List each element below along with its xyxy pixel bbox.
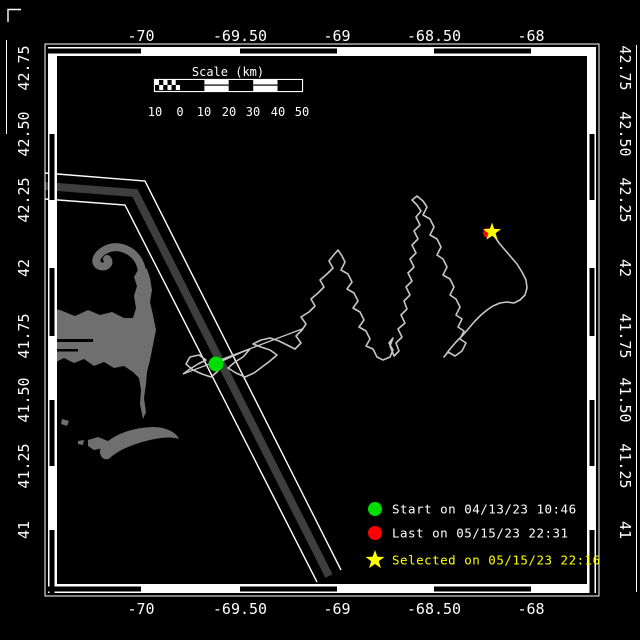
scale-bar-midline — [253, 85, 277, 86]
scale-bar-title: Scale (km) — [192, 65, 264, 79]
lon-tick-label-top: -69.50 — [213, 27, 267, 45]
legend-start-label: Start on 04/13/23 10:46 — [392, 502, 577, 517]
frame-tick-segment — [434, 49, 531, 54]
frame-tick-segment — [240, 587, 337, 592]
lat-tick-label-left: 42.50 — [15, 111, 33, 156]
scale-bar-segment-dark — [180, 80, 204, 91]
lat-tick-label-right: 42.50 — [616, 111, 634, 156]
scale-bar-checker-cell — [168, 80, 172, 85]
scale-bar-checker-cell — [155, 80, 159, 85]
lat-tick-label-right: 42.25 — [616, 177, 634, 222]
lat-tick-label-right: 41.50 — [616, 377, 634, 422]
frame-tick-segment — [50, 134, 55, 200]
frame-tick-segment — [48, 49, 141, 54]
scale-bar-tick-label: 40 — [271, 105, 285, 119]
start-position-marker[interactable] — [209, 357, 224, 372]
lat-tick-label-left: 41.25 — [15, 443, 33, 488]
scale-bar-tick-label: 10 — [148, 105, 162, 119]
scale-bar-tick-label: 0 — [176, 105, 183, 119]
scale-bar-checker-cell — [163, 80, 167, 85]
scale-bar-tick-label: 10 — [197, 105, 211, 119]
legend-start-marker — [368, 502, 382, 516]
lon-tick-label-bottom: -70 — [127, 600, 154, 618]
legend-last-label: Last on 05/15/23 22:31 — [392, 526, 569, 541]
scale-bar-checker-cell — [159, 85, 163, 90]
scale-bar-checker-cell — [155, 85, 159, 90]
lat-tick-label-left: 41.75 — [15, 313, 33, 358]
scale-bar-tick-label: 50 — [295, 105, 309, 119]
lat-tick-label-right: 41 — [616, 521, 634, 539]
lat-tick-label-right: 41.25 — [616, 443, 634, 488]
scale-bar-checker-cell — [176, 85, 180, 90]
frame-tick-segment — [50, 530, 55, 593]
frame-tick-segment — [48, 587, 141, 592]
lon-tick-label-bottom: -68.50 — [407, 600, 461, 618]
legend: Start on 04/13/23 10:46 Last on 05/15/23… — [366, 502, 601, 569]
lat-tick-label-left: 42.75 — [15, 45, 33, 90]
lon-tick-label-bottom: -69 — [323, 600, 350, 618]
legend-selected-label: Selected on 05/15/23 22:16 — [392, 553, 601, 568]
scale-bar-checker-cell — [159, 80, 163, 85]
scale-bar-checker-cell — [163, 85, 167, 90]
lat-tick-label-right: 42 — [616, 259, 634, 277]
scale-bar-checker-cell — [172, 85, 176, 90]
lat-tick-label-left: 41 — [15, 521, 33, 539]
lat-tick-label-left: 41.50 — [15, 377, 33, 422]
lon-tick-label-bottom: -69.50 — [213, 600, 267, 618]
scale-bar-body — [155, 80, 303, 92]
lat-tick-label-left: 42.25 — [15, 177, 33, 222]
tracking-map-window: -70-70-69.50-69.50-69-69-68.50-68.50-68-… — [0, 0, 640, 640]
lon-tick-label-top: -68 — [517, 27, 544, 45]
frame-tick-segment — [240, 49, 337, 54]
scale-bar-checker-cell — [168, 85, 172, 90]
lat-tick-label-right: 41.75 — [616, 313, 634, 358]
scale-bar-checker-cell — [172, 80, 176, 85]
lon-tick-label-bottom: -68 — [517, 600, 544, 618]
lon-tick-label-top: -69 — [323, 27, 350, 45]
frame-tick-segment — [590, 268, 595, 336]
lon-tick-label-top: -70 — [127, 27, 154, 45]
scale-bar-tick-label: 30 — [246, 105, 260, 119]
frame-tick-segment — [50, 400, 55, 466]
lat-tick-label-left: 42 — [15, 259, 33, 277]
frame-tick-segment — [434, 587, 531, 592]
scale-bar-checker-cell — [176, 80, 180, 85]
scale-bar-segment-dark — [229, 80, 253, 91]
frame-tick-segment — [590, 134, 595, 200]
scale-bar-segment-dark — [278, 80, 302, 91]
frame-tick-segment — [590, 400, 595, 466]
scale-bar-tick-label: 20 — [222, 105, 236, 119]
lon-tick-label-top: -68.50 — [407, 27, 461, 45]
scale-bar-midline — [204, 85, 228, 86]
map-plot: -70-70-69.50-69.50-69-69-68.50-68.50-68-… — [0, 0, 640, 640]
legend-last-marker — [368, 526, 382, 540]
frame-tick-segment — [50, 268, 55, 336]
lat-tick-label-right: 42.75 — [616, 45, 634, 90]
